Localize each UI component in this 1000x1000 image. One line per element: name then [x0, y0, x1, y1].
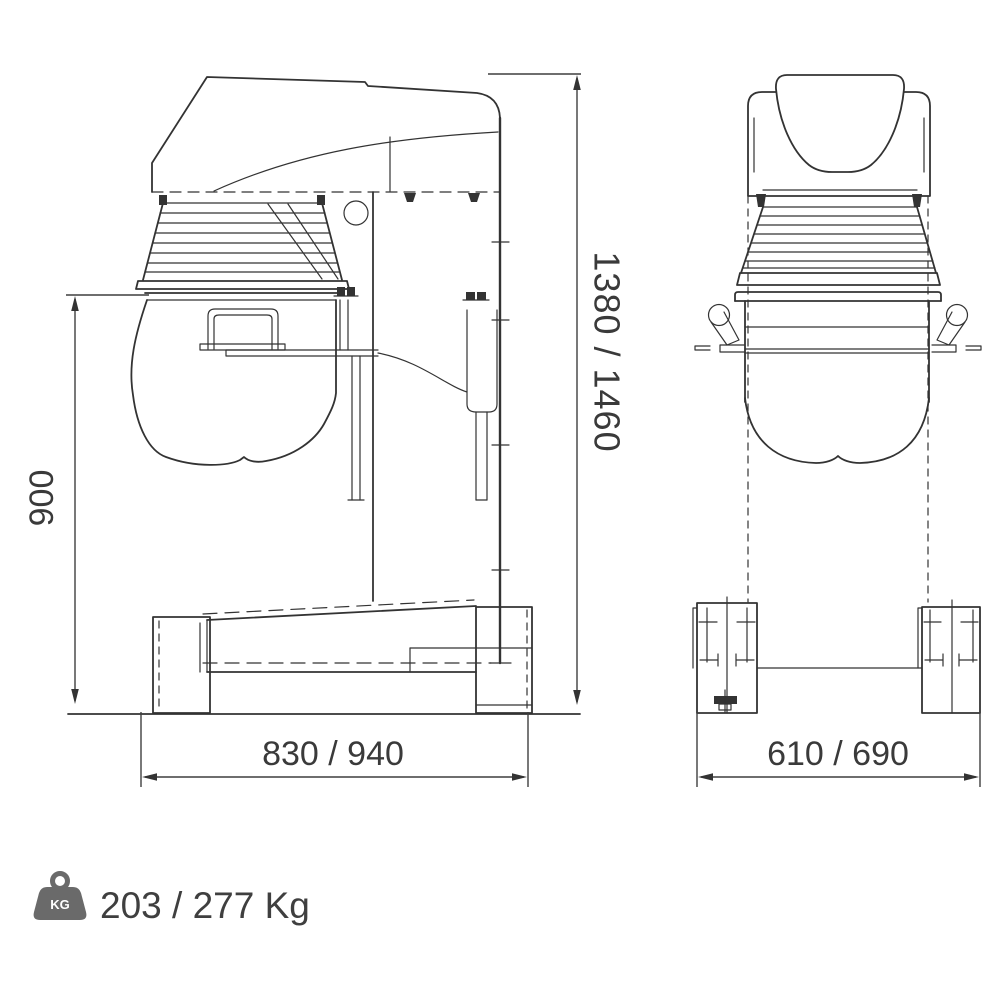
- bowl-height-label: 900: [23, 470, 61, 527]
- overall-height-label: 1380 / 1460: [586, 251, 627, 452]
- front-view-bowl: [695, 196, 981, 602]
- kg-weight-icon: KG: [34, 874, 87, 921]
- dimension-base-depth: 830 / 940: [141, 712, 528, 787]
- base-depth-label: 830 / 940: [262, 735, 404, 773]
- dimension-bowl-height: 900: [23, 295, 149, 704]
- side-view-bellows: [136, 195, 368, 289]
- front-view-head: [748, 75, 930, 207]
- weight-value: 203 / 277 Kg: [100, 885, 310, 926]
- weight-spec: KG 203 / 277 Kg: [34, 874, 310, 927]
- bowl-handle-right: [932, 305, 981, 353]
- front-view: [693, 75, 981, 713]
- front-view-bellows: [737, 207, 940, 285]
- technical-drawing: 1380 / 1460 900 830 / 940 610 / 690 KG 2…: [0, 0, 1000, 1000]
- side-view-head: [152, 77, 500, 202]
- front-view-feet: [693, 597, 980, 713]
- base-width-label: 610 / 690: [767, 735, 909, 773]
- drawing-canvas: 1380 / 1460 900 830 / 940 610 / 690 KG 2…: [0, 0, 1000, 1000]
- side-view-base: [153, 600, 532, 713]
- side-view-column: [373, 118, 511, 663]
- side-view-bowl: [131, 287, 497, 500]
- bowl-handle-left: [695, 305, 744, 353]
- dimension-overall-height: 1380 / 1460: [488, 74, 627, 705]
- side-view: [131, 77, 532, 713]
- dimension-base-width: 610 / 690: [697, 712, 980, 787]
- kg-icon-label: KG: [50, 897, 70, 912]
